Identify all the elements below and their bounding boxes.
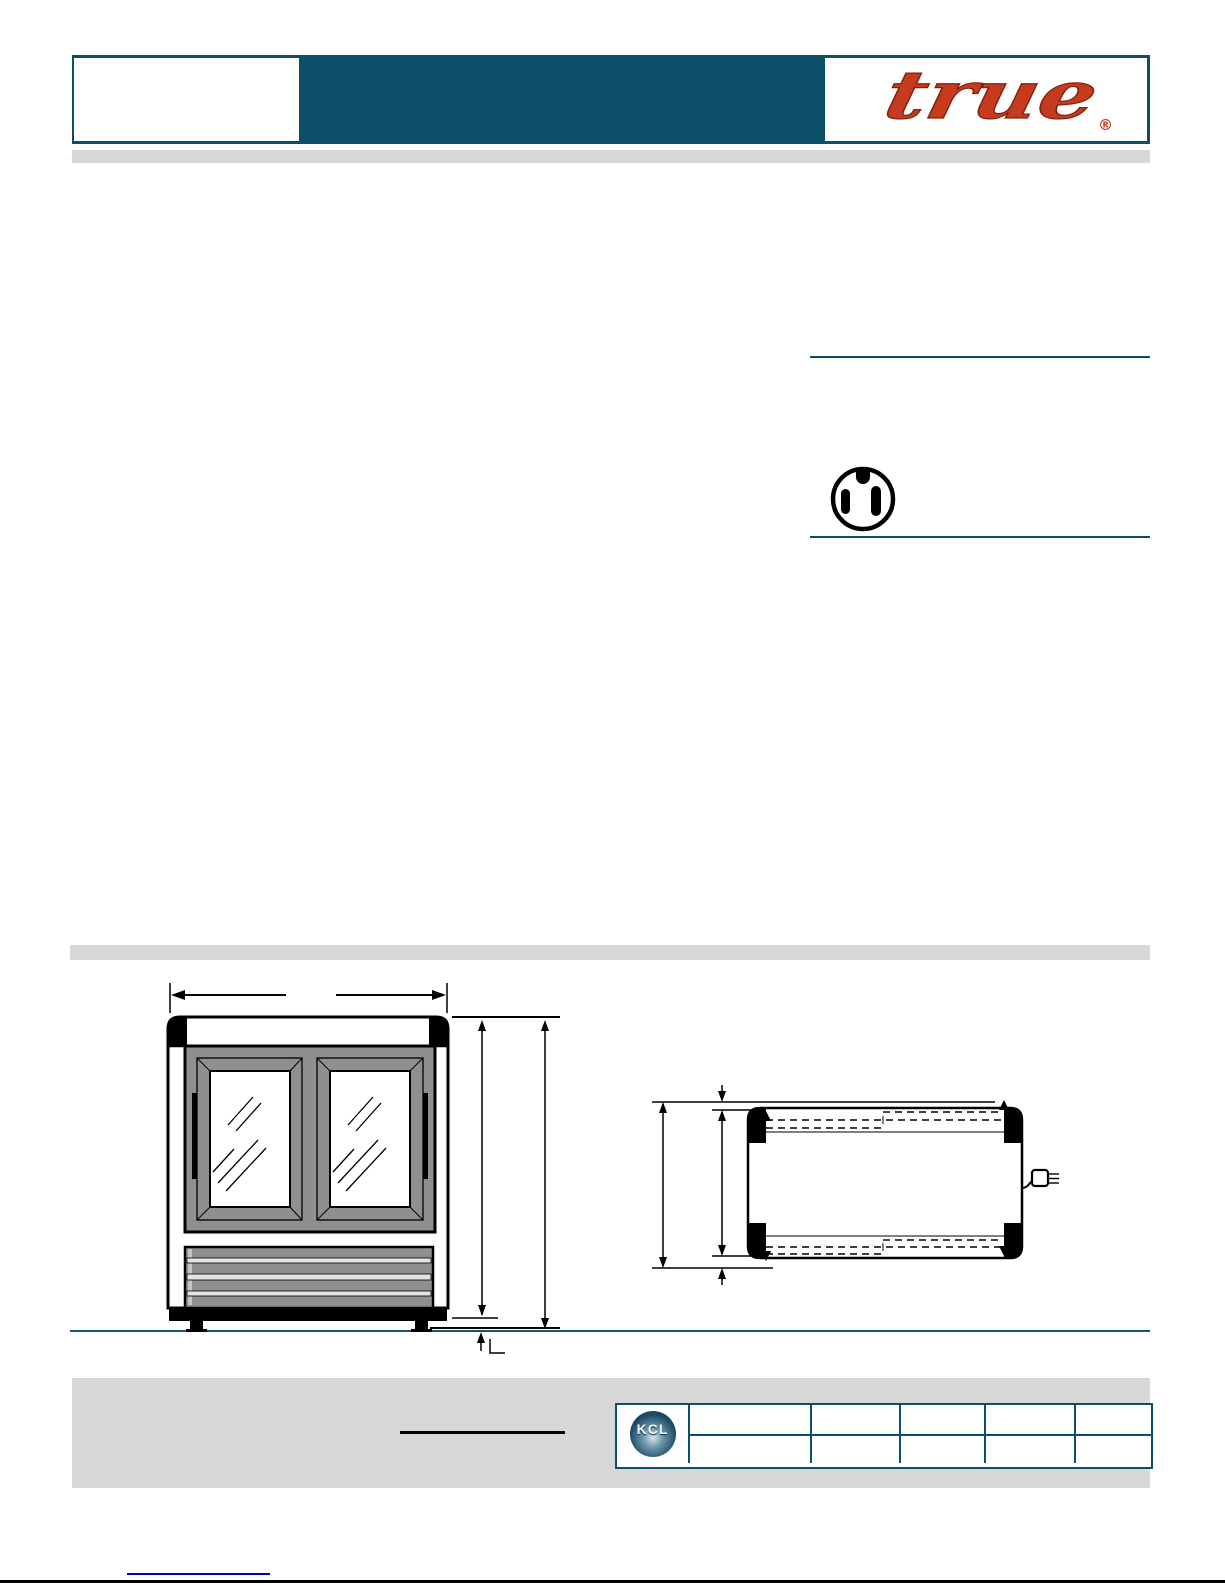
footer-link-underline[interactable] xyxy=(127,1573,270,1575)
electrical-section-rule-top xyxy=(810,356,1150,358)
spec-table-cell xyxy=(984,1405,1074,1434)
spec-table-cell xyxy=(810,1405,899,1434)
electrical-section-rule-bottom xyxy=(810,536,1150,538)
true-logo: true ® xyxy=(836,60,1136,140)
kcl-spec-table: KCL xyxy=(615,1403,1153,1469)
width-dimension xyxy=(170,983,447,1013)
spec-table-cell xyxy=(899,1434,984,1463)
header-banner: true ® xyxy=(72,55,1150,144)
kcl-logo: KCL xyxy=(630,1411,676,1457)
kcl-logo-text: KCL xyxy=(630,1421,676,1437)
spec-table-cell xyxy=(810,1434,899,1463)
front-elevation-drawing xyxy=(140,975,570,1365)
spec-table-cell xyxy=(688,1405,810,1434)
top-left-corner-cap xyxy=(168,1017,187,1046)
spec-table-cell xyxy=(1074,1434,1151,1463)
top-right-corner-cap xyxy=(429,1017,448,1046)
louvered-grill xyxy=(185,1247,433,1308)
header-divider-bar xyxy=(72,150,1150,163)
spec-table-cell xyxy=(1074,1405,1151,1434)
spec-table-cell xyxy=(688,1434,810,1463)
plan-cabinet-outline xyxy=(748,1108,1022,1258)
power-cord-plug-icon xyxy=(1022,1170,1059,1188)
nema-5-15-power-outlet-icon xyxy=(826,462,900,536)
spec-table-cell xyxy=(984,1434,1074,1463)
registered-trademark: ® xyxy=(1098,116,1113,134)
kcl-logo-cell: KCL xyxy=(617,1405,688,1463)
hot-slot xyxy=(841,489,850,514)
page-bottom-rule xyxy=(0,1580,1225,1583)
base-and-legs xyxy=(169,1308,447,1332)
left-door-handle xyxy=(192,1093,197,1179)
signature-line xyxy=(400,1431,565,1434)
brand-logo-box: true ® xyxy=(825,58,1147,141)
section-divider-bar xyxy=(70,945,1150,960)
model-number-box xyxy=(74,58,299,141)
top-plan-drawing xyxy=(630,1075,1075,1295)
right-door-handle xyxy=(423,1093,428,1179)
neutral-slot xyxy=(871,486,881,516)
sliding-glass-doors xyxy=(185,1046,435,1232)
spec-sheet-page: true ® xyxy=(0,0,1225,1585)
spec-table-cell xyxy=(899,1405,984,1434)
leg-height-dimension xyxy=(477,1332,505,1353)
true-logo-text: true xyxy=(878,60,1105,134)
